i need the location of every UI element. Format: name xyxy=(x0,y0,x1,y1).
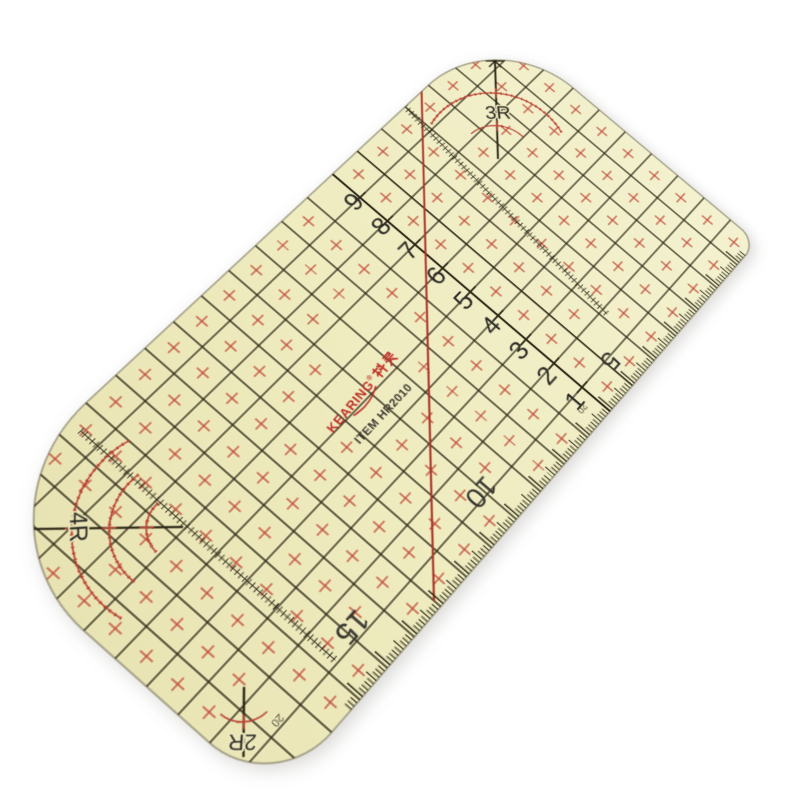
svg-text:2R: 2R xyxy=(227,729,257,754)
svg-text:4R: 4R xyxy=(63,511,92,543)
svg-text:3R: 3R xyxy=(484,103,512,124)
